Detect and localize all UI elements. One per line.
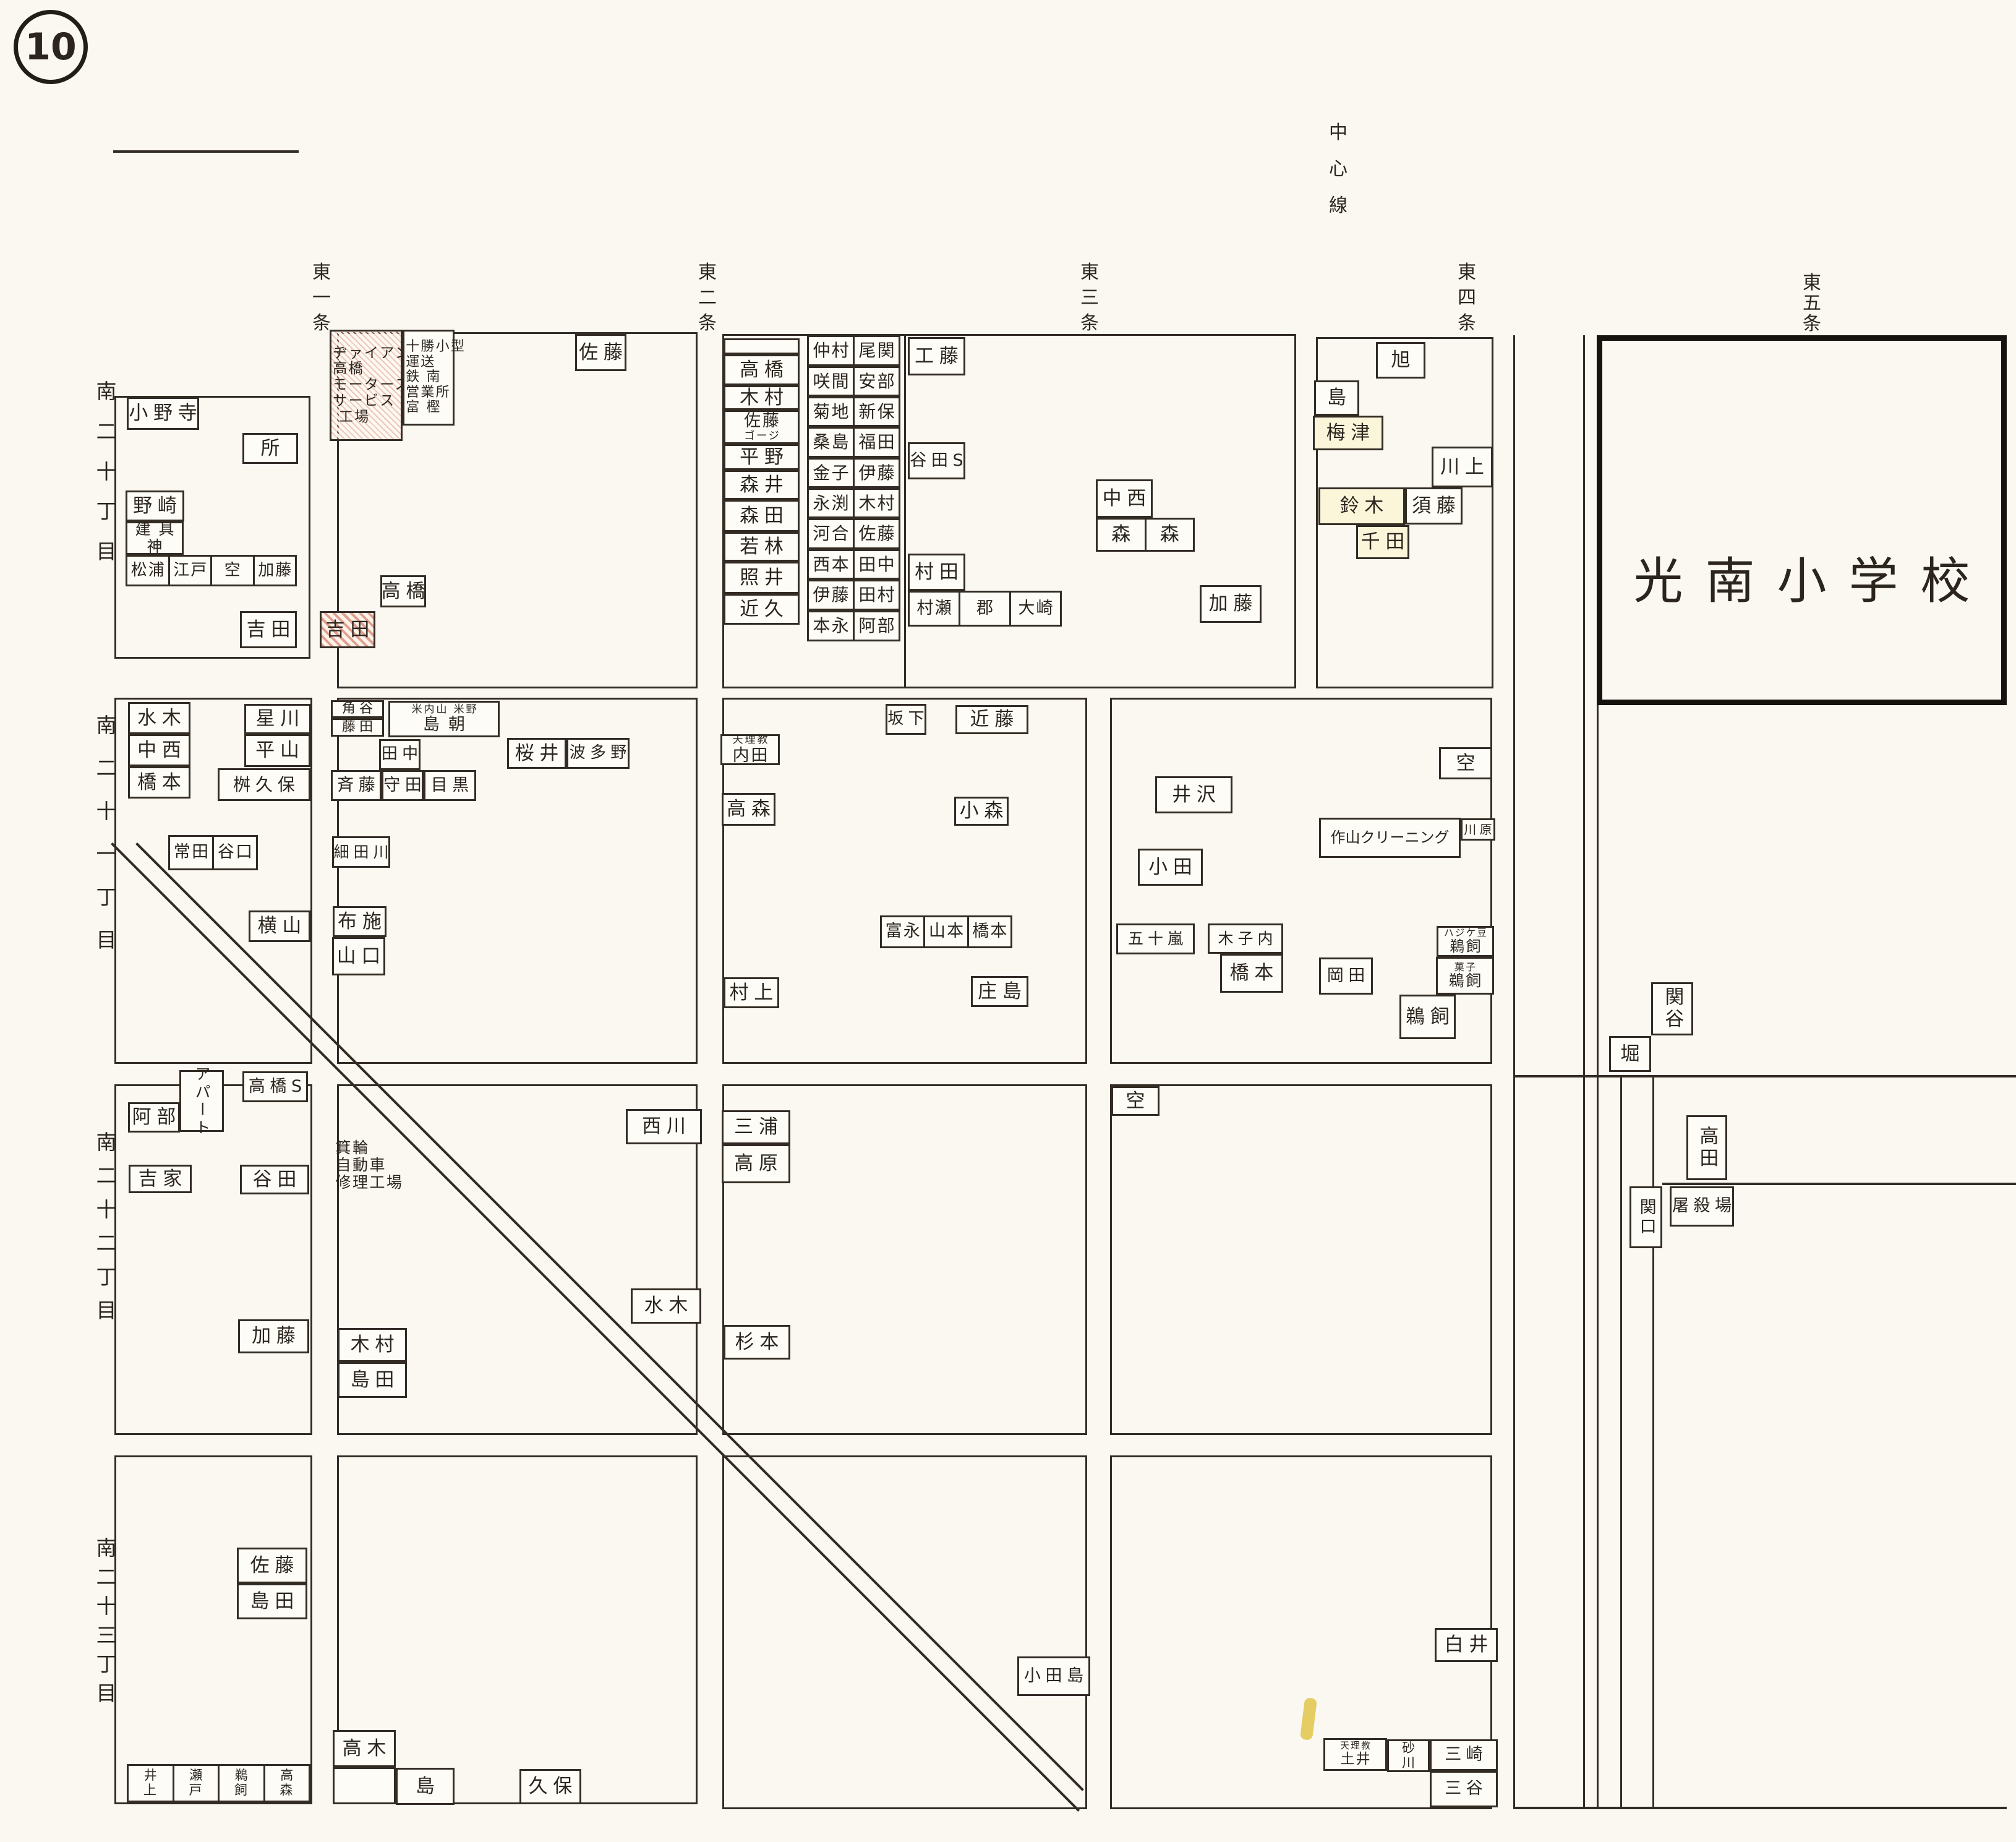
name-cell: 桑島 <box>809 429 853 456</box>
name-cell: 大崎 <box>1009 593 1060 625</box>
name-cell: 鵜 飼 <box>218 1766 263 1801</box>
name-box: 堀 <box>1609 1036 1651 1072</box>
label-char: 条 <box>1803 315 1821 333</box>
name-cell: 森 <box>1098 520 1145 550</box>
name-line: 修理工場 <box>334 1174 404 1191</box>
name-box: 旭 <box>1376 342 1425 379</box>
road-line <box>1515 1807 2007 1809</box>
name-box: 平野 <box>724 444 800 470</box>
name-box: 若林 <box>724 532 800 562</box>
name-box: 高田 <box>1686 1115 1727 1180</box>
name-box: 細田川 <box>332 836 390 868</box>
name-box: 田中 <box>379 739 421 770</box>
name-box: 咲間安部 <box>807 366 900 396</box>
label-char: 丁 <box>96 887 117 907</box>
name-box: 三谷 <box>1430 1771 1498 1807</box>
name-box: 高原 <box>722 1144 790 1183</box>
label-char: 十 <box>96 1199 117 1220</box>
name-box: 伊藤田村 <box>807 580 900 610</box>
street-label: 東四条 <box>1454 263 1479 333</box>
name-box: ハジケ豆鵜飼 <box>1437 926 1494 957</box>
name-line: 営業所 <box>404 385 451 401</box>
label-char: 十 <box>96 461 117 482</box>
label-char: 東 <box>1458 263 1476 282</box>
name-line: 砂 <box>1401 1741 1416 1756</box>
name-box: 須藤 <box>1405 487 1463 525</box>
name-cell: 伊藤 <box>809 581 853 609</box>
name-box: 桜井 <box>507 738 566 769</box>
name-cell: 江戸 <box>168 557 211 585</box>
label-char: 条 <box>698 314 717 333</box>
name-box: 吉田 <box>240 611 297 648</box>
name-box: 高森 <box>722 793 775 826</box>
lane-line <box>1583 335 1585 1809</box>
frame-line <box>113 150 299 153</box>
name-cell: 田村 <box>853 581 899 609</box>
street-label: 東二条 <box>695 263 720 333</box>
page-number-badge: 10 <box>14 10 88 84</box>
name-box <box>724 338 800 354</box>
label-char: 目 <box>96 1300 117 1321</box>
label-char: 二 <box>96 1233 117 1253</box>
name-cell: 郡 <box>959 593 1009 625</box>
name-cell: 尾関 <box>853 337 899 364</box>
name-cell: 新保 <box>853 398 899 425</box>
name-box: 本永阿部 <box>807 610 900 641</box>
name-line: 鵜飼 <box>1447 972 1483 990</box>
label-char: 二 <box>698 289 717 307</box>
label-char: 十 <box>96 1596 117 1616</box>
name-line: 内田 <box>731 747 769 765</box>
label-char: 二 <box>96 758 117 778</box>
name-box: 波多野 <box>566 738 630 769</box>
name-line: 高橋 <box>331 361 364 377</box>
name-box: 島田 <box>338 1362 407 1398</box>
label-char: 東 <box>698 263 717 282</box>
name-box: 菊地新保 <box>807 396 900 427</box>
label-char: 目 <box>96 541 117 562</box>
name-box: 梅津 <box>1313 416 1383 450</box>
name-line: 天理教 <box>1339 1741 1372 1751</box>
name-box: 河合佐藤 <box>807 518 900 549</box>
name-line: 箕輪 <box>334 1139 370 1157</box>
name-box: 屠殺場 <box>1670 1186 1734 1227</box>
name-cell: 咲間 <box>809 368 853 395</box>
name-box: 常田谷口 <box>168 835 258 870</box>
block-s23-a <box>114 1455 312 1804</box>
name-cell: 本永 <box>809 612 853 640</box>
name-box: 天理教土井 <box>1323 1738 1387 1771</box>
name-cell: 木村 <box>853 490 899 516</box>
name-cell: 金子 <box>809 460 853 486</box>
name-box: 坂下 <box>886 704 926 735</box>
name-line: 天理教 <box>731 734 770 746</box>
name-cell: 安部 <box>853 368 899 395</box>
name-box: 木村 <box>338 1328 407 1362</box>
name-box: 星川 <box>244 704 311 734</box>
name-cell: 谷口 <box>212 837 256 868</box>
residential-map-page: 10 光南小学校 東一条東二条東三条東四条東五条中心線南二十丁目南二十一丁目南二… <box>0 0 2016 1842</box>
name-cell: 富永 <box>882 917 923 946</box>
label-char: 五 <box>1803 294 1821 313</box>
name-box: 鵜飼 <box>1399 995 1456 1039</box>
label-char: 東 <box>1803 274 1821 293</box>
name-box: 関谷 <box>1651 982 1693 1035</box>
district-label: 南二十一丁目 <box>94 715 119 950</box>
name-box: 鈴木 <box>1318 487 1405 525</box>
label-char: 一 <box>96 844 117 864</box>
block-s22-d <box>1110 1084 1492 1435</box>
page-number: 10 <box>25 25 77 69</box>
name-box: 目黒 <box>424 770 476 801</box>
name-box: 桑島福田 <box>807 427 900 458</box>
name-box: 村上 <box>724 977 779 1008</box>
label-char: 二 <box>96 421 117 442</box>
name-cell: 菊地 <box>809 398 853 425</box>
label-char: 線 <box>1329 197 1348 215</box>
label-char: 条 <box>1458 314 1476 333</box>
name-box: 布施 <box>333 906 387 937</box>
name-box: 所 <box>242 433 298 464</box>
district-label: 南二十二丁目 <box>94 1132 119 1321</box>
label-char: 心 <box>1329 160 1348 179</box>
name-box: 谷田S <box>908 442 965 479</box>
name-box: 建 具神 <box>126 521 184 555</box>
label-char: 二 <box>96 1165 117 1186</box>
block-s22-a <box>114 1084 312 1435</box>
name-box: ヂァイアント号高橋モータースサービス 工場 <box>330 330 403 441</box>
name-box: 千田 <box>1356 525 1409 559</box>
name-box: 三崎 <box>1430 1739 1498 1771</box>
name-box: 川原 <box>1461 818 1495 841</box>
name-box: 斉藤 <box>331 770 382 801</box>
lane-line <box>1597 705 1599 1809</box>
name-box: 森井 <box>724 470 800 500</box>
name-box: 阿部 <box>128 1102 180 1133</box>
name-box: 藤田 <box>331 718 384 737</box>
name-box: 砂川 <box>1387 1739 1430 1772</box>
label-char: 丁 <box>96 1267 117 1287</box>
name-box: 小田島 <box>1017 1656 1090 1696</box>
street-label: 東五条 <box>1800 274 1824 333</box>
name-box: 関口 <box>1629 1186 1662 1248</box>
name-box: 佐藤 <box>237 1548 307 1583</box>
district-label: 南二十丁目 <box>94 381 119 562</box>
name-box: 高橋 <box>380 575 426 607</box>
name-box: 菓子鵜飼 <box>1436 957 1494 995</box>
school-block: 光南小学校 <box>1597 335 2007 705</box>
name-cell: 佐藤 <box>853 520 899 547</box>
name-box: 杉本 <box>724 1325 790 1360</box>
block-inner-line <box>904 334 906 688</box>
name-cell: 仲村 <box>809 337 853 364</box>
name-box: 川上 <box>1432 447 1493 487</box>
name-box: 山口 <box>332 937 385 975</box>
name-box: 木村 <box>724 385 800 410</box>
label-char: 東 <box>312 263 331 282</box>
street-label: 東三条 <box>1077 263 1102 333</box>
name-line: 佐藤 <box>742 412 780 431</box>
name-box: 庄島 <box>971 976 1028 1007</box>
name-box: 西本田中 <box>807 549 900 580</box>
name-box: 松浦江戸空加藤 <box>126 555 297 586</box>
label-char: 十 <box>96 801 117 821</box>
name-box: 空 <box>1111 1086 1160 1116</box>
name-box: 富永山本橋本 <box>880 915 1012 948</box>
name-cell: 山本 <box>923 917 967 946</box>
name-box: 高木 <box>333 1730 396 1767</box>
name-box: 野崎 <box>126 490 184 521</box>
name-cell: 西本 <box>809 551 853 578</box>
name-box: 中西 <box>1096 479 1153 518</box>
name-box: 西川 <box>626 1109 702 1144</box>
name-box: 島 <box>1314 380 1359 416</box>
name-box: 加藤 <box>238 1319 309 1353</box>
name-box: 五十嵐 <box>1116 923 1195 954</box>
name-box: 佐藤 <box>575 334 626 371</box>
name-box: 高橋 <box>724 354 800 385</box>
name-line: 川 <box>1401 1756 1416 1771</box>
name-line: 鵜飼 <box>1448 938 1482 955</box>
name-line: サービス <box>331 393 396 409</box>
name-box: 加藤 <box>1200 585 1262 623</box>
name-line: ゴージ <box>742 431 780 442</box>
name-cell: 常田 <box>170 837 212 868</box>
name-box: 天理教内田 <box>720 734 780 765</box>
name-line: 菓子 <box>1453 962 1477 973</box>
name-line: ハジケ豆 <box>1443 928 1488 938</box>
name-box: 高橋S <box>242 1071 308 1102</box>
name-cell: 加藤 <box>253 557 296 585</box>
name-box: 小野寺 <box>127 397 199 430</box>
name-box: 橋本 <box>128 766 190 799</box>
street-label: 中心線 <box>1326 124 1351 215</box>
street-label: 東一条 <box>309 263 334 333</box>
label-char: 東 <box>1080 263 1099 282</box>
name-line: モータース <box>331 377 411 393</box>
name-line: 土井 <box>1339 1752 1372 1768</box>
name-box: 谷田 <box>240 1165 309 1194</box>
name-box: 森森 <box>1096 518 1195 552</box>
name-box: 工藤 <box>908 337 965 375</box>
name-line: 富 樫 <box>404 400 442 416</box>
name-line: 自動車 <box>334 1157 387 1174</box>
name-box: 永渕木村 <box>807 488 900 518</box>
name-box: 米内山 米野島 朝 <box>388 701 500 737</box>
school-name: 光南小学校 <box>1612 541 1993 613</box>
name-box: アパート <box>179 1070 224 1132</box>
name-line: 神 <box>145 538 164 555</box>
name-box: 近藤 <box>955 705 1028 734</box>
name-box: 橋本 <box>1220 954 1283 993</box>
name-box: 村田 <box>908 554 965 591</box>
name-box: 木子内 <box>1208 923 1283 954</box>
name-cell: 永渕 <box>809 490 853 516</box>
label-char: 丁 <box>96 501 117 521</box>
name-box: 吉家 <box>129 1165 192 1193</box>
label-char: 四 <box>1458 289 1476 307</box>
lane-line <box>1513 335 1515 1809</box>
label-char: 南 <box>96 381 117 401</box>
road-line <box>1662 1183 2016 1185</box>
name-cell: 橋本 <box>967 917 1010 946</box>
name-box: 近久 <box>724 594 800 625</box>
name-box: 島 <box>396 1768 455 1805</box>
name-box: 井 上瀬 戸鵜 飼高 森 <box>127 1764 310 1802</box>
name-box: 金子伊藤 <box>807 458 900 488</box>
name-box: 横山 <box>249 910 310 942</box>
name-cell: 井 上 <box>129 1766 173 1801</box>
label-char: 一 <box>312 289 331 307</box>
name-cell: 空 <box>210 557 253 585</box>
name-box: 作山クリーニング <box>1319 818 1461 858</box>
label-char: 丁 <box>96 1654 117 1674</box>
name-cell: 阿部 <box>853 612 899 640</box>
name-box: 水木 <box>631 1288 701 1324</box>
name-box: 十勝小型運送鉄 南営業所富 樫 <box>403 330 455 426</box>
name-line: 建 具 <box>134 521 176 538</box>
label-char: 三 <box>1080 289 1099 307</box>
name-box: 島田 <box>237 1583 307 1619</box>
name-box <box>333 1767 396 1804</box>
district-label: 南二十三丁目 <box>94 1538 119 1703</box>
name-cell: 村瀬 <box>910 593 959 625</box>
name-line: 鉄 南 <box>404 370 442 385</box>
label-char: 南 <box>96 1538 117 1558</box>
name-line: 運送 <box>404 355 436 371</box>
name-box: 村瀬郡大崎 <box>908 591 1062 627</box>
label-char: 目 <box>96 1683 117 1703</box>
name-box: 佐藤ゴージ <box>724 410 800 444</box>
name-box: 吉田 <box>320 611 375 648</box>
name-box: 水木 <box>128 702 190 734</box>
name-cell: 福田 <box>853 429 899 456</box>
label-char: 目 <box>96 930 117 950</box>
name-box: 角谷 <box>331 700 384 718</box>
name-line: 十勝小型 <box>404 340 466 355</box>
name-box: 守田 <box>382 770 424 801</box>
label-char: 二 <box>96 1567 117 1587</box>
name-box: 平山 <box>244 734 310 767</box>
road-line <box>1515 1075 2016 1077</box>
label-char: 条 <box>312 314 331 333</box>
label-char: 中 <box>1329 124 1348 142</box>
name-cell: 松浦 <box>127 557 168 585</box>
name-box: 空 <box>1439 747 1492 779</box>
name-box: 箕輪自動車修理工場 <box>334 1132 427 1199</box>
name-line: 工場 <box>331 409 370 426</box>
name-box: 桝久保 <box>218 768 310 801</box>
name-cell: 田中 <box>853 551 899 578</box>
name-box: 白井 <box>1435 1628 1498 1662</box>
label-char: 条 <box>1080 314 1099 333</box>
name-box: 照井 <box>724 562 800 594</box>
name-box: 三浦 <box>722 1110 790 1144</box>
name-cell: 河合 <box>809 520 853 547</box>
label-char: 南 <box>96 715 117 735</box>
name-box: 森田 <box>724 500 800 532</box>
name-cell: 森 <box>1145 520 1194 550</box>
name-box: 井沢 <box>1155 776 1232 813</box>
name-box: 中西 <box>128 734 190 766</box>
label-char: 南 <box>96 1132 117 1152</box>
name-cell: 伊藤 <box>853 460 899 486</box>
name-box: 小田 <box>1138 849 1203 886</box>
name-line: 米内山 米野 <box>410 704 479 716</box>
label-char: 三 <box>96 1625 117 1645</box>
name-box: 小森 <box>954 797 1009 826</box>
name-cell: 瀬 戸 <box>173 1766 218 1801</box>
name-box: 久保 <box>519 1769 581 1804</box>
lane-line <box>1620 1076 1622 1809</box>
name-line: 島 朝 <box>421 716 466 734</box>
name-box: 岡田 <box>1319 957 1373 995</box>
name-box: 仲村尾関 <box>807 335 900 366</box>
name-cell: 高 森 <box>263 1766 309 1801</box>
